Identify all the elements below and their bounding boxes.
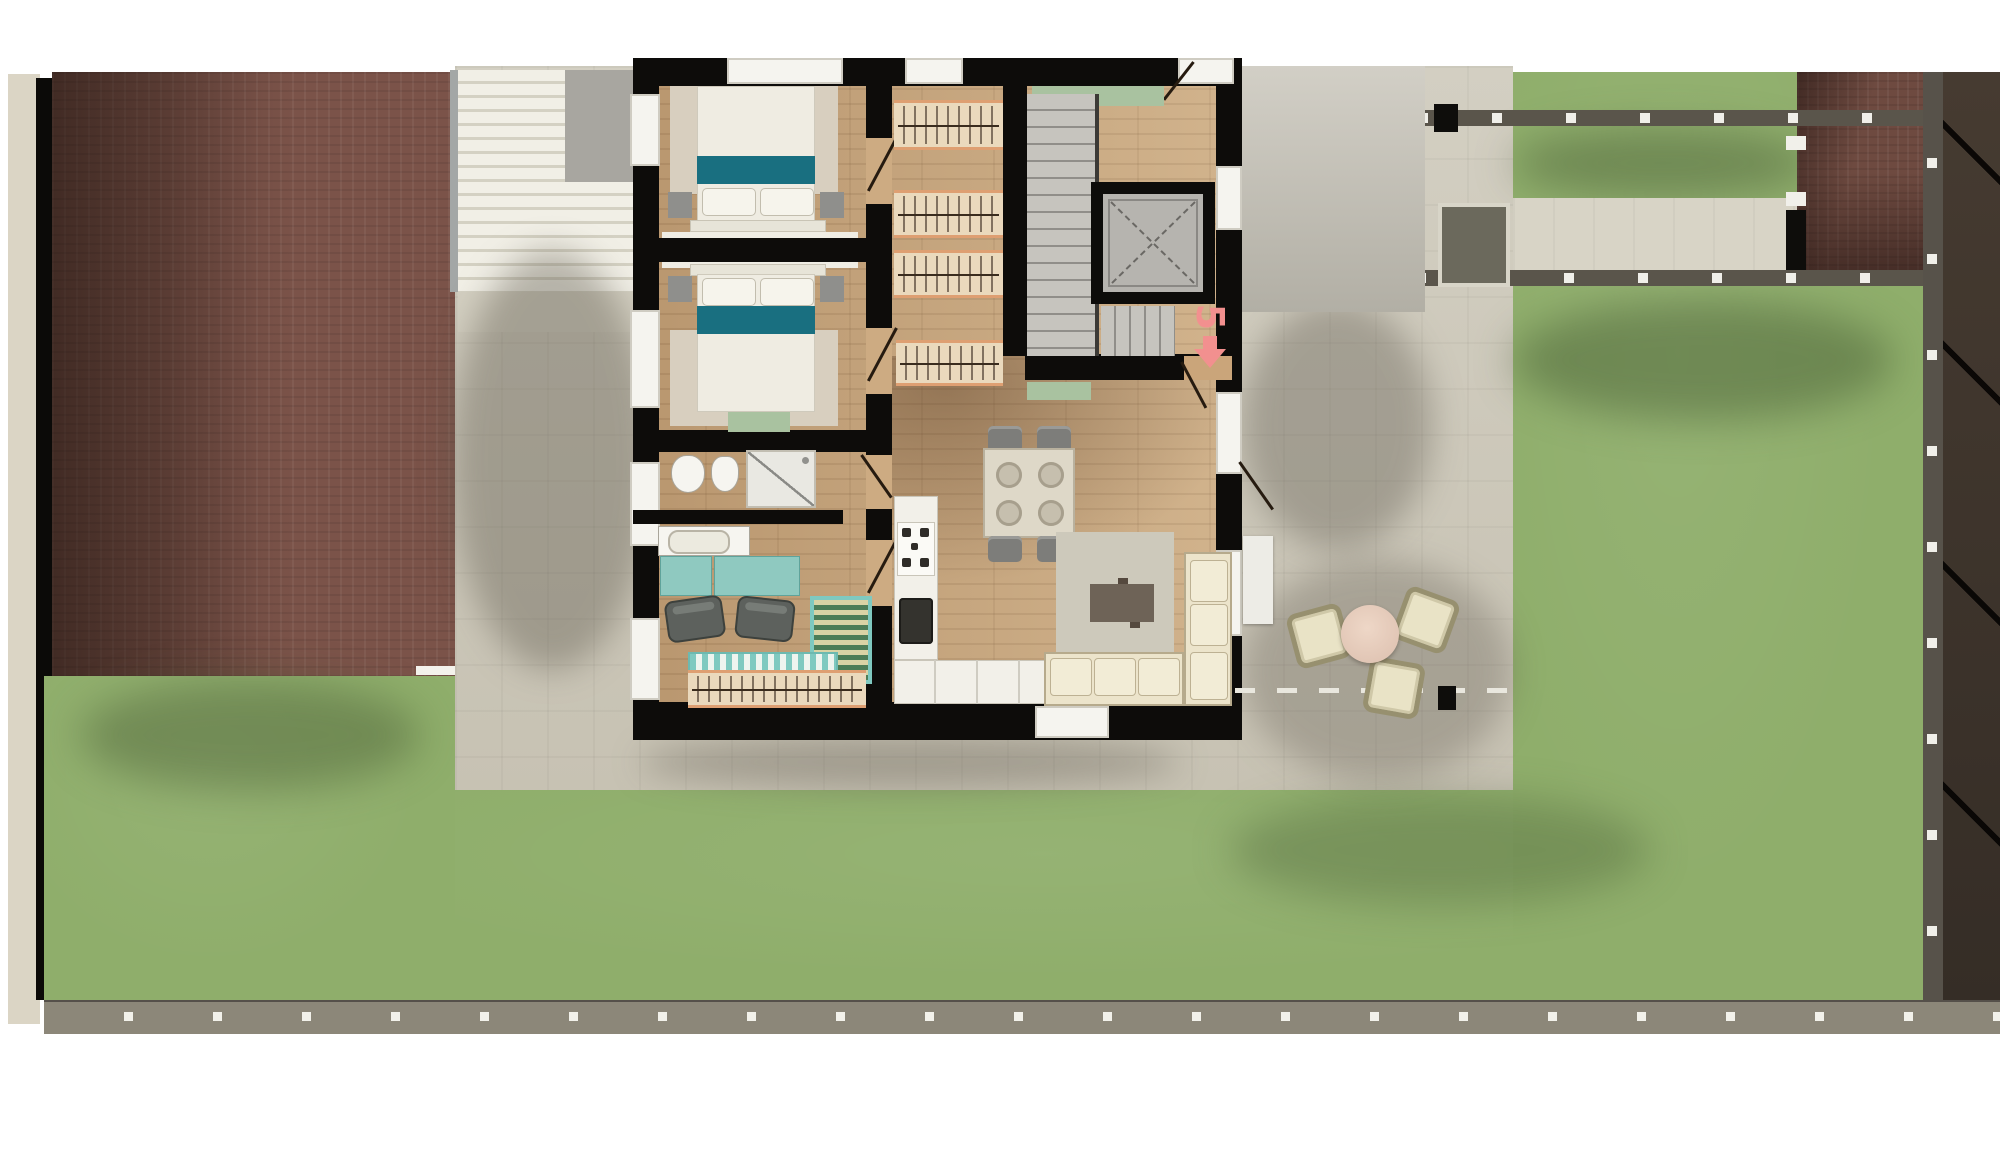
- wall-bathroom-bottom: [633, 510, 843, 524]
- desk: [660, 556, 712, 596]
- wardrobe-closet: [894, 100, 1003, 150]
- grass-shadow: [80, 680, 420, 790]
- coffee-table-tab: [1118, 578, 1128, 584]
- staircase: [1027, 94, 1095, 356]
- fence-right-vertical: [1923, 72, 1943, 1002]
- sofa-cushion: [1190, 652, 1228, 700]
- garden-path: [1513, 198, 1797, 272]
- dining-table: [983, 448, 1075, 538]
- wardrobe-closet: [894, 250, 1003, 298]
- wall-bedroom-divider: [633, 238, 892, 262]
- shelf: [662, 232, 858, 238]
- grass-shadow: [1513, 300, 1893, 420]
- building-shadow: [1242, 300, 1432, 550]
- nightstand: [820, 276, 844, 302]
- burner-icon: [911, 543, 918, 550]
- grass-shadow: [1230, 795, 1650, 905]
- kitchen-sink: [899, 598, 933, 644]
- window: [727, 58, 843, 84]
- burner-icon: [902, 528, 911, 537]
- nightstand: [668, 276, 692, 302]
- burner-icon: [920, 528, 929, 537]
- neighbor-roof-right: [1943, 72, 2000, 1002]
- gate-white-post: [1786, 136, 1806, 150]
- site-plan: 5: [0, 0, 2000, 1150]
- headboard: [690, 220, 826, 232]
- pillow: [702, 188, 756, 216]
- window: [1035, 706, 1109, 738]
- grass-shadow: [1513, 128, 1813, 198]
- window: [630, 310, 660, 408]
- pillow: [760, 188, 814, 216]
- building-shadow: [452, 250, 652, 670]
- wardrobe-row: [688, 670, 866, 708]
- nightstand: [668, 192, 692, 218]
- wall-bathroom-top: [633, 430, 892, 452]
- burner-icon: [902, 558, 911, 567]
- bedroom1-bed-runner: [697, 156, 815, 184]
- unit-arrow-down-icon: [1194, 349, 1226, 368]
- gate-white-post: [1786, 192, 1806, 206]
- place-setting: [996, 500, 1022, 526]
- gate-post: [1786, 210, 1806, 270]
- unit-arrow-stem: [1203, 336, 1217, 349]
- burner-icon: [920, 558, 929, 567]
- stove: [897, 522, 935, 576]
- outdoor-chair: [1362, 656, 1427, 721]
- brick-courtyard-left: [52, 72, 455, 676]
- coffee-table-tab: [1130, 622, 1140, 628]
- elevator-cross-icon: [1108, 199, 1198, 287]
- deck-edge: [450, 70, 458, 292]
- window: [630, 462, 660, 546]
- outdoor-round-table: [1341, 605, 1399, 663]
- fence-posts: [1927, 72, 1937, 1002]
- unit-number-marker: 5: [1191, 297, 1229, 337]
- window: [630, 618, 660, 700]
- sofa-cushion: [1050, 658, 1092, 696]
- terrace-wall-right: [1242, 66, 1425, 312]
- hanger-icons: [898, 256, 999, 292]
- sofa-cushion: [1190, 560, 1228, 602]
- place-setting: [1038, 462, 1064, 488]
- bedroom2-bed-runner: [697, 306, 815, 334]
- terrace-door: [1216, 166, 1242, 230]
- office-chair: [663, 594, 726, 644]
- desk: [714, 556, 800, 596]
- window: [630, 94, 660, 166]
- hanger-icons: [692, 676, 862, 702]
- shower: [746, 450, 816, 508]
- brick-patio-right: [1797, 72, 1925, 272]
- office-chair: [734, 595, 796, 643]
- deck-landing: [565, 70, 633, 182]
- open-door-slab: [1243, 536, 1273, 624]
- window: [905, 58, 963, 84]
- wardrobe-closet: [896, 340, 1003, 386]
- boundary-post: [1438, 686, 1456, 710]
- hanger-icons: [898, 196, 999, 232]
- sofa-cushion: [1094, 658, 1136, 696]
- bathtub-basin: [668, 530, 730, 554]
- green-mat: [1027, 382, 1091, 400]
- fence-black-post: [1434, 104, 1458, 132]
- dining-chair: [988, 536, 1022, 562]
- boundary-wall-bottom: [44, 1000, 2000, 1034]
- green-mat: [728, 412, 790, 432]
- wall-posts: [44, 1012, 2000, 1021]
- wall-stair-core: [1003, 58, 1027, 356]
- bidet: [711, 456, 739, 492]
- building-shadow: [640, 736, 1180, 788]
- hanger-icons: [900, 346, 999, 380]
- coffee-table: [1090, 584, 1154, 622]
- toilet: [671, 455, 705, 493]
- pillow: [760, 278, 814, 306]
- pillow: [702, 278, 756, 306]
- staircase-lower: [1101, 306, 1175, 356]
- place-setting: [996, 462, 1022, 488]
- place-setting: [1038, 500, 1064, 526]
- nightstand: [820, 192, 844, 218]
- wardrobe-closet: [894, 190, 1003, 238]
- sofa-cushion: [1138, 658, 1180, 696]
- sofa-cushion: [1190, 604, 1228, 646]
- hanger-icons: [898, 106, 999, 144]
- doormat: [1438, 203, 1510, 287]
